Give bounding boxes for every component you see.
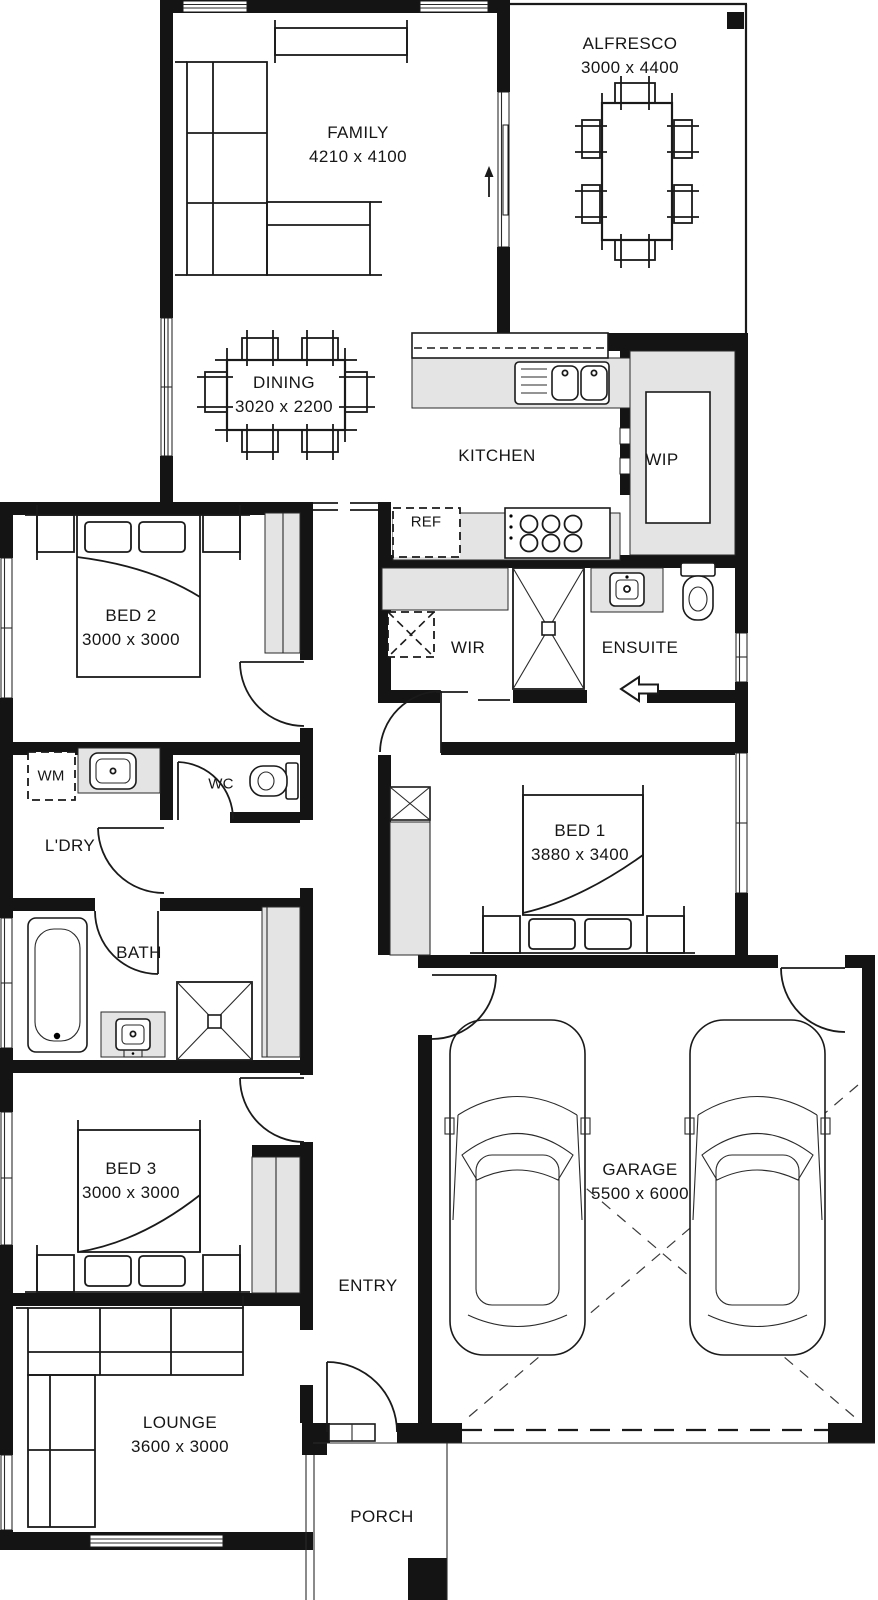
room-label-wc: WC bbox=[208, 774, 233, 795]
alfresco-chair bbox=[615, 76, 655, 110]
linen-cupboard bbox=[262, 907, 300, 1057]
cooktop bbox=[505, 508, 610, 558]
room-label-bath: BATH bbox=[116, 941, 162, 965]
window bbox=[1, 558, 12, 698]
room-label-garage: GARAGE5500 x 6000 bbox=[591, 1158, 689, 1206]
window bbox=[183, 1, 247, 12]
double-sink bbox=[515, 362, 609, 404]
room-label-entry: ENTRY bbox=[338, 1274, 397, 1298]
window bbox=[736, 753, 747, 893]
room-label-ref: REF bbox=[411, 512, 442, 533]
room-label-family: FAMILY4210 x 4100 bbox=[309, 121, 407, 169]
room-label-lounge: LOUNGE3600 x 3000 bbox=[131, 1411, 229, 1459]
dining-chair bbox=[302, 424, 338, 460]
up-arrow-icon bbox=[485, 166, 494, 197]
alfresco-chair bbox=[615, 234, 655, 268]
dining-chair bbox=[197, 372, 233, 412]
room-label-bed1: BED 13880 x 3400 bbox=[531, 819, 629, 867]
window bbox=[1, 1112, 12, 1245]
car bbox=[445, 1020, 590, 1355]
room-label-bed3: BED 33000 x 3000 bbox=[82, 1157, 180, 1205]
bed3-bed bbox=[25, 1120, 250, 1292]
window bbox=[1, 918, 12, 1048]
sliding-door bbox=[498, 92, 509, 247]
room-label-kitchen: KITCHEN bbox=[458, 444, 535, 468]
hall-opening bbox=[313, 503, 378, 510]
wc-toilet bbox=[250, 763, 298, 799]
bed1-bed bbox=[470, 785, 695, 953]
wir-shelf bbox=[382, 568, 508, 610]
wir-hanging-space bbox=[388, 612, 434, 657]
window bbox=[736, 633, 747, 682]
dining-chair bbox=[339, 372, 375, 412]
laundry-trough bbox=[90, 753, 136, 789]
walls bbox=[0, 0, 875, 1600]
room-label-dining: DINING3020 x 2200 bbox=[235, 371, 333, 419]
alfresco-post bbox=[727, 12, 744, 29]
room-label-wm: WM bbox=[37, 766, 64, 787]
bed2-door bbox=[240, 662, 304, 726]
room-label-ldry: L'DRY bbox=[45, 834, 95, 858]
kitchen-overhead bbox=[412, 333, 608, 358]
window bbox=[1, 1455, 12, 1530]
room-label-alfresco: ALFRESCO3000 x 4400 bbox=[581, 32, 679, 80]
laundry-door bbox=[98, 828, 164, 893]
window bbox=[420, 1, 488, 12]
car bbox=[685, 1020, 830, 1355]
room-label-ensuite: ENSUITE bbox=[602, 636, 678, 660]
wir-sliding-door bbox=[436, 692, 510, 700]
alfresco-table bbox=[575, 76, 699, 268]
room-label-wir: WIR bbox=[451, 636, 485, 660]
dining-chair bbox=[242, 424, 278, 460]
bed1-robe bbox=[390, 822, 430, 955]
bath-shower bbox=[177, 982, 252, 1060]
porch-pillar bbox=[408, 1558, 447, 1600]
floor-plan-drawing bbox=[0, 0, 878, 1600]
family-tv-unit bbox=[275, 20, 407, 63]
ensuite-toilet bbox=[681, 563, 715, 620]
room-label-porch: PORCH bbox=[350, 1505, 413, 1529]
front-door bbox=[327, 1362, 397, 1441]
floor-plan: FAMILY4210 x 4100 ALFRESCO3000 x 4400 DI… bbox=[0, 0, 878, 1600]
dining-chair bbox=[242, 330, 278, 366]
bed1-linen bbox=[390, 787, 430, 820]
room-label-bed2: BED 23000 x 3000 bbox=[82, 604, 180, 652]
window bbox=[161, 318, 172, 456]
ensuite-basin bbox=[610, 573, 644, 606]
bed3-door bbox=[240, 1078, 304, 1142]
window bbox=[90, 1535, 223, 1547]
dining-chair bbox=[302, 330, 338, 366]
room-label-wip: WIP bbox=[645, 448, 678, 472]
ensuite-shower bbox=[513, 568, 584, 689]
bathtub bbox=[28, 918, 87, 1052]
